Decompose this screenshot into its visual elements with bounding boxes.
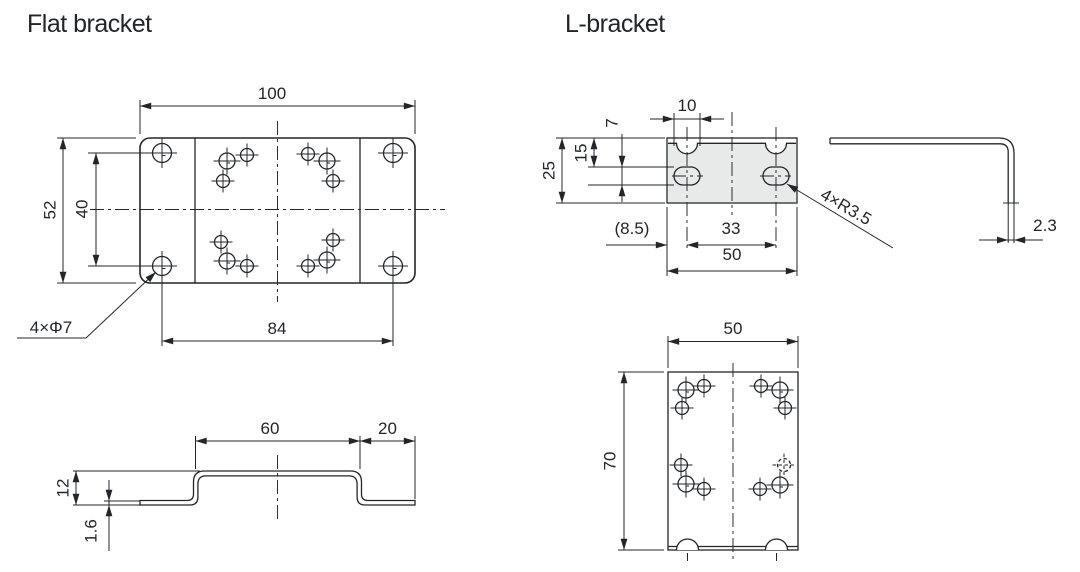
dim-label: 10: [678, 96, 697, 115]
dim-label: 1.6: [82, 519, 101, 543]
hidden-hole: [773, 454, 796, 477]
side-outer-contour: [830, 138, 1014, 203]
drawing-canvas: Flat bracket: [0, 0, 1080, 572]
small-hole: [673, 471, 700, 498]
small-hole: [212, 170, 235, 193]
dim-label: (8.5): [615, 219, 650, 238]
radius-callout: 4×R3.5: [787, 184, 893, 248]
small-hole: [767, 472, 794, 499]
dim-label: 60: [261, 419, 280, 438]
side-inner-contour: [830, 144, 1008, 203]
small-hole: [214, 148, 241, 175]
dim-label: 70: [601, 452, 620, 471]
small-hole: [767, 377, 794, 404]
dim-label: 7: [603, 118, 622, 127]
dim-flange-width: 20: [360, 419, 415, 499]
dim-label: 2.3: [1033, 216, 1057, 235]
dim-thickness: 1.6: [82, 480, 110, 551]
small-hole: [774, 397, 797, 420]
dim-hole-spacing-horizontal: 84: [162, 277, 393, 346]
small-hole: [214, 248, 241, 275]
dim-label: 50: [724, 319, 743, 338]
small-hole: [236, 255, 259, 278]
small-hole: [314, 148, 341, 175]
dim-label: 84: [268, 319, 287, 338]
small-hole: [673, 377, 700, 404]
dim-label: 33: [722, 219, 741, 238]
dim-label: 25: [540, 161, 559, 180]
small-hole: [670, 454, 693, 477]
dim-label: 40: [73, 200, 92, 219]
small-hole: [693, 375, 716, 398]
small-hole: [750, 375, 773, 398]
dim-hole-spacing: 33: [687, 219, 776, 245]
technical-drawing-page: Flat bracket: [0, 0, 1080, 572]
callout-label: 4×Φ7: [30, 318, 72, 337]
small-hole: [297, 143, 320, 166]
small-hole: [314, 247, 341, 274]
dim-label: 15: [572, 144, 591, 163]
corner-hole: [378, 251, 408, 281]
dim-label: 50: [723, 245, 742, 264]
small-hole: [749, 478, 772, 501]
dim-bottom-depth: 70: [601, 372, 665, 550]
l-bracket-section: L-bracket 10: [540, 10, 1057, 561]
flat-bracket-profile-view: 12 1.6 60 20: [54, 419, 416, 551]
flat-bracket-top-view: 100 52 40 84: [17, 84, 445, 346]
l-bracket-front-view: 10 7 15 25: [540, 96, 894, 276]
small-hole: [322, 229, 345, 252]
corner-hole: [378, 138, 408, 168]
small-hole: [236, 144, 259, 167]
dim-label: 100: [258, 84, 286, 103]
dim-profile-height: 12: [54, 471, 77, 505]
dim-label: 52: [41, 201, 60, 220]
flat-bracket-title: Flat bracket: [27, 10, 152, 38]
small-hole: [297, 255, 320, 278]
dim-bottom-width: 50: [668, 319, 798, 368]
dim-hole-offset-top: 15: [572, 138, 595, 167]
dim-label: 12: [54, 479, 73, 498]
flat-bracket-section: Flat bracket: [17, 10, 445, 551]
dim-front-width: 50: [667, 207, 797, 276]
small-hole: [210, 231, 233, 254]
small-hole: [671, 397, 694, 420]
dim-slot-height: 7: [588, 118, 674, 202]
dim-front-height: 25: [540, 138, 666, 203]
small-hole: [322, 170, 345, 193]
corner-hole: [147, 138, 177, 168]
dim-edge-offset: (8.5): [606, 207, 667, 276]
dim-sheet-thickness: 2.3: [979, 216, 1057, 240]
hole-callout: 4×Φ7: [17, 272, 156, 338]
dim-label: 20: [378, 419, 397, 438]
l-bracket-title: L-bracket: [565, 10, 665, 38]
l-bracket-bottom-view: 50 70: [601, 319, 799, 561]
small-hole: [693, 478, 716, 501]
